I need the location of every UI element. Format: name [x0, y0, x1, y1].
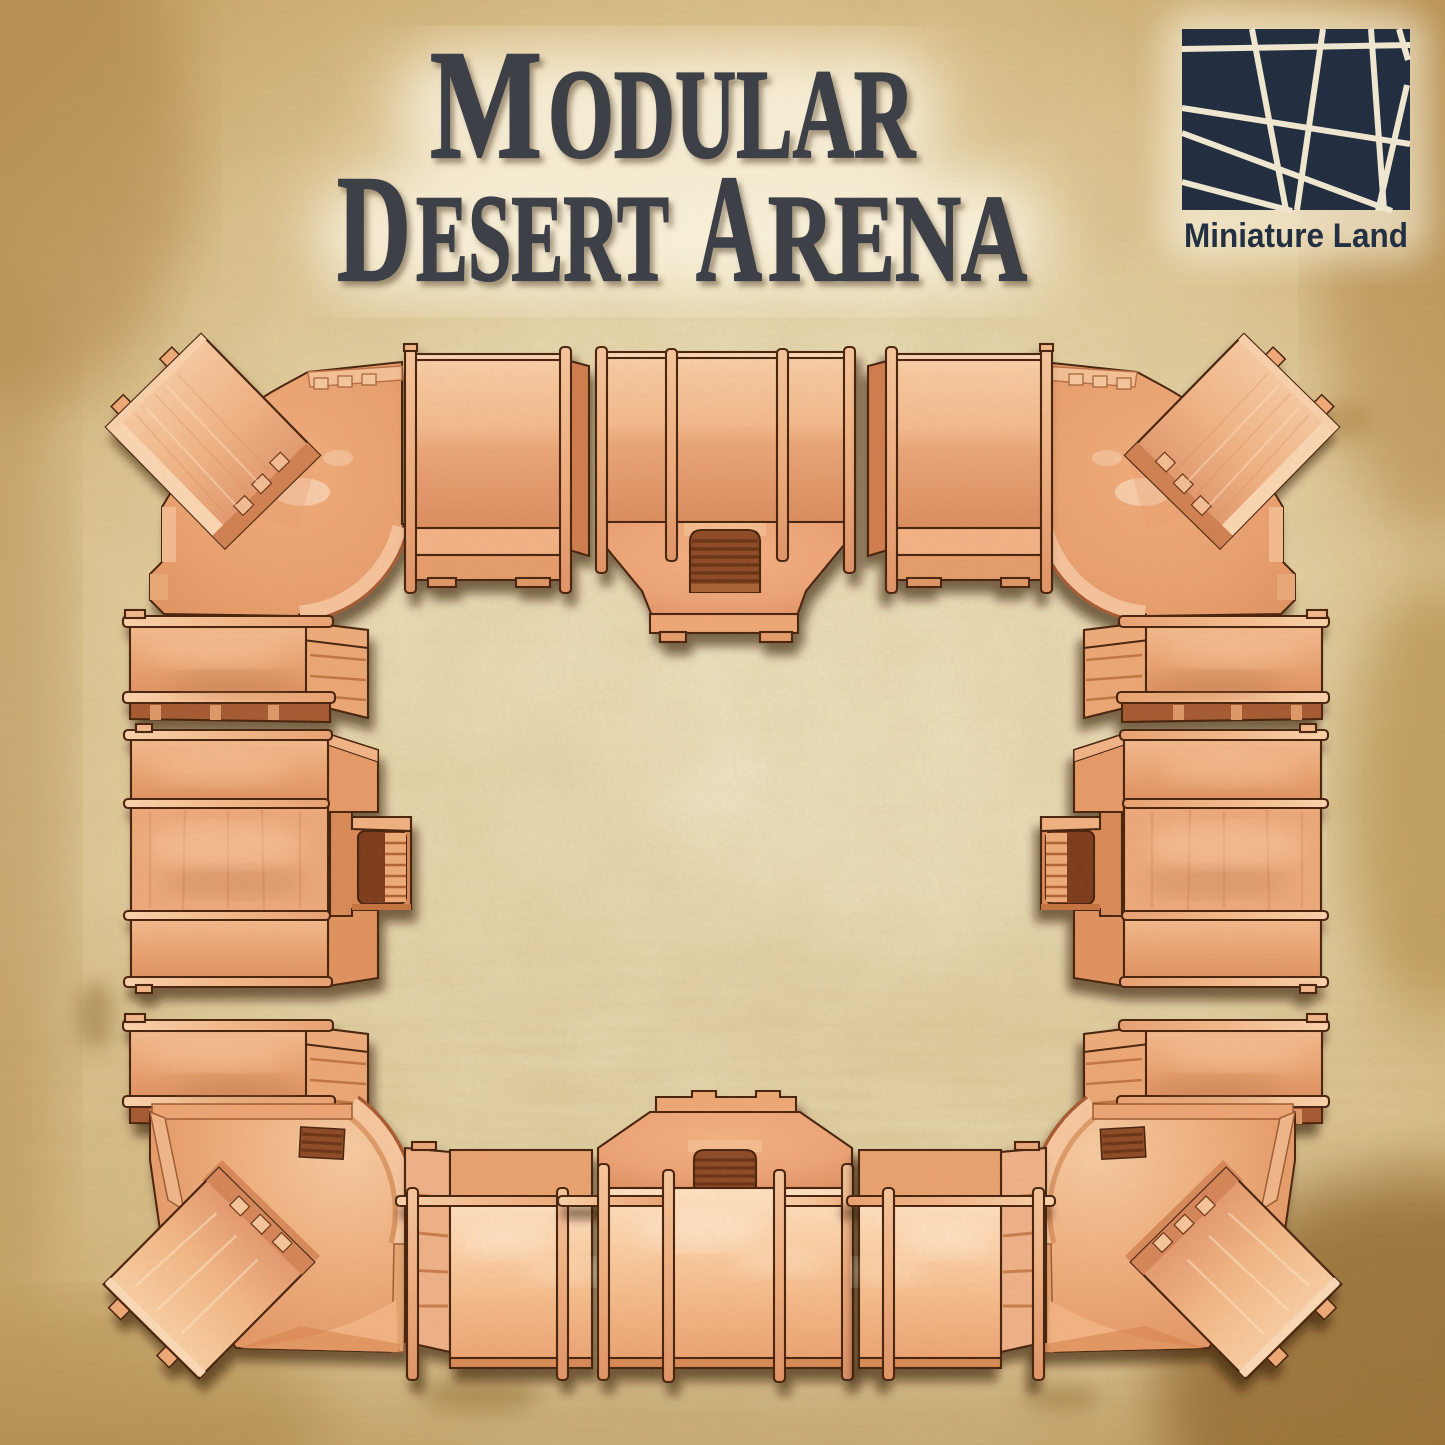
svg-text:RENA: RENA — [768, 170, 1027, 307]
svg-text:D: D — [337, 145, 411, 314]
svg-text:Miniature Land: Miniature Land — [1184, 217, 1408, 255]
svg-text:ESERT: ESERT — [416, 170, 669, 307]
svg-text:A: A — [696, 145, 762, 314]
svg-text:M: M — [430, 18, 542, 191]
